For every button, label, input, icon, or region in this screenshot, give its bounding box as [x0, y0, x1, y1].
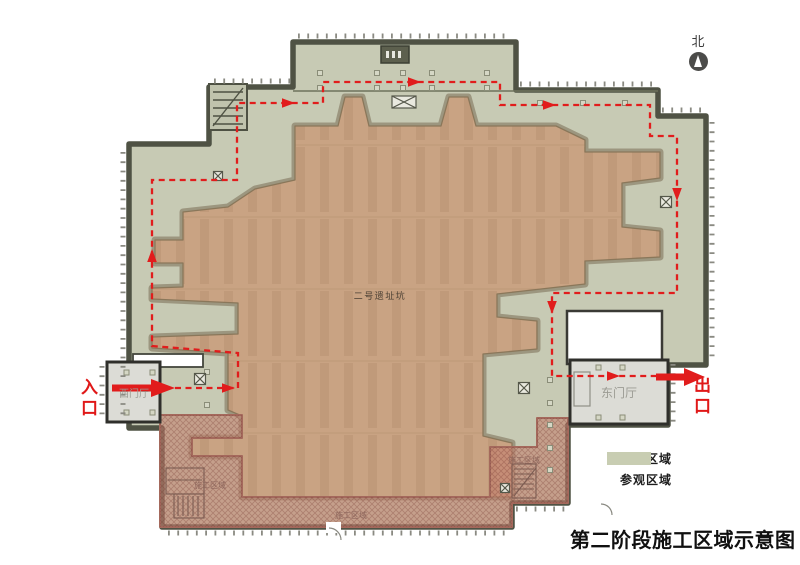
construction-zone-label-right: 施工区域 [508, 455, 540, 465]
construction-zone-label-bottom: 施工区域 [335, 510, 367, 520]
legend-label-visiting: 参观区域 [620, 471, 672, 488]
entrance-label: 入口 [78, 378, 95, 420]
exit-label: 出口 [691, 376, 708, 418]
stair-block [209, 84, 247, 130]
legend-swatch-visiting [607, 452, 651, 465]
west-lobby-label: 西门厅 [119, 387, 149, 400]
east-lobby-label: 东门厅 [601, 385, 637, 400]
page-title: 第二阶段施工区域示意图 [570, 524, 796, 553]
courtyard-notch [567, 311, 662, 364]
floor-plan-canvas: 二号遗址坑 西门厅 东门厅 施工区域 施工区域 施工区域 [0, 0, 800, 565]
pit-label: 二号遗址坑 [354, 290, 407, 302]
north-arrow-icon [689, 52, 708, 71]
elevator-block [381, 46, 409, 63]
construction-zone-label-left: 施工区域 [194, 480, 226, 490]
legend: 施工区域 参观区域 [607, 452, 672, 486]
legend-item-visiting: 参观区域 [607, 473, 672, 486]
north-label: 北 [686, 36, 710, 50]
north-compass: 北 [686, 36, 710, 71]
site-plan-diagram: 二号遗址坑 西门厅 东门厅 施工区域 施工区域 施工区域 北 入口 出口 施工区… [0, 0, 800, 565]
